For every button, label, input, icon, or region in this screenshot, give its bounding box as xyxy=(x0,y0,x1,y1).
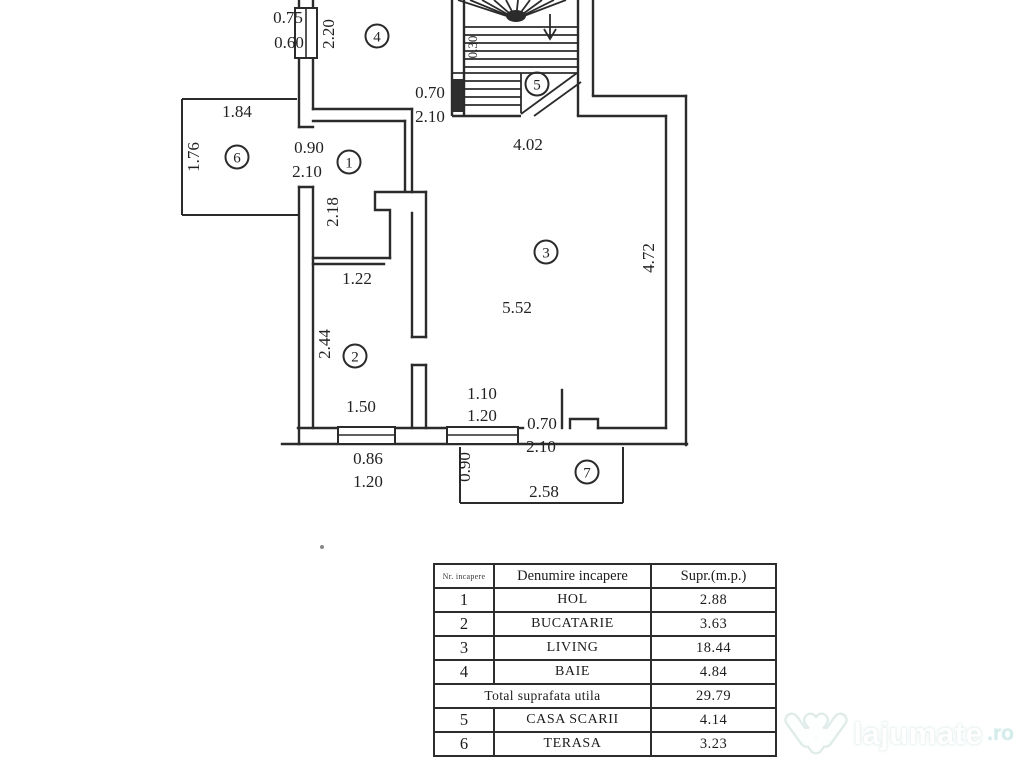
room-nr-cell: 2 xyxy=(434,612,494,636)
total-area-cell: 29.79 xyxy=(651,684,776,708)
room-area-cell: 18.44 xyxy=(651,636,776,660)
dimension-label: 0.70 xyxy=(527,414,557,433)
dimension-label: 0.60 xyxy=(274,33,304,52)
dimension-label: 1.20 xyxy=(353,472,383,491)
room-number: 3 xyxy=(542,246,550,262)
room-area-cell: 2.88 xyxy=(651,588,776,612)
room-nr-cell: 3 xyxy=(434,636,494,660)
header-name: Denumire incapere xyxy=(494,564,651,588)
room-number: 6 xyxy=(233,151,241,167)
dimension-label: 2.10 xyxy=(415,107,445,126)
room-number: 5 xyxy=(533,78,541,94)
room-nr-cell: 5 xyxy=(434,708,494,732)
room-name-cell: LIVING xyxy=(494,636,651,660)
room-name-cell: CASA SCARII xyxy=(494,708,651,732)
scanned-floorplan-page: { "plan": { "line_color": "#2b2b2b", "la… xyxy=(0,0,1024,768)
table-row: 4BAIE4.84 xyxy=(434,660,776,684)
dimension-label: 1.10 xyxy=(467,384,497,403)
room-name-cell: BUCATARIE xyxy=(494,612,651,636)
room-area-cell: 3.23 xyxy=(651,732,776,756)
table-row: 3LIVING18.44 xyxy=(434,636,776,660)
dimension-label: 2.10 xyxy=(526,437,556,456)
dimension-label: 2.20 xyxy=(319,19,338,49)
room-area-cell: 4.14 xyxy=(651,708,776,732)
room-nr-cell: 1 xyxy=(434,588,494,612)
dimension-label: 1.76 xyxy=(184,142,203,172)
room-number: 7 xyxy=(583,466,591,482)
dimension-label: 0.30 xyxy=(465,36,480,59)
dimension-label: 1.22 xyxy=(342,269,372,288)
room-area-cell: 3.63 xyxy=(651,612,776,636)
table-row: 5CASA SCARII4.14 xyxy=(434,708,776,732)
dimension-label: 1.50 xyxy=(346,397,376,416)
dimension-label: 1.84 xyxy=(222,102,252,121)
room-number: 1 xyxy=(345,156,353,172)
room-number: 2 xyxy=(351,350,359,366)
area-table: Nr. incapere Denumire incapere Supr.(m.p… xyxy=(433,563,777,757)
room-nr-cell: 6 xyxy=(434,732,494,756)
dimension-label: 4.02 xyxy=(513,135,543,154)
header-nr: Nr. incapere xyxy=(434,564,494,588)
room-name-cell: TERASA xyxy=(494,732,651,756)
scan-speck xyxy=(320,545,324,549)
table-row: Total suprafata utila29.79 xyxy=(434,684,776,708)
room-name-cell: BAIE xyxy=(494,660,651,684)
floorplan-scan: 0.750.602.200.702.100.304.021.841.760.90… xyxy=(0,0,1024,768)
room-area-cell: 4.84 xyxy=(651,660,776,684)
total-label-cell: Total suprafata utila xyxy=(434,684,651,708)
dimension-label: 0.75 xyxy=(273,8,303,27)
header-area: Supr.(m.p.) xyxy=(651,564,776,588)
dimension-label: 2.44 xyxy=(315,329,334,359)
floor-plan-drawing: 0.750.602.200.702.100.304.021.841.760.90… xyxy=(0,0,1024,560)
table-row: 2BUCATARIE3.63 xyxy=(434,612,776,636)
room-number: 4 xyxy=(373,30,381,46)
table-row: 1HOL2.88 xyxy=(434,588,776,612)
dimension-label: 5.52 xyxy=(502,298,532,317)
dimension-label: 0.70 xyxy=(415,83,445,102)
dimension-label: 2.10 xyxy=(292,162,322,181)
dimension-label: 0.90 xyxy=(294,138,324,157)
table-header-row: Nr. incapere Denumire incapere Supr.(m.p… xyxy=(434,564,776,588)
dimension-label: 2.18 xyxy=(323,197,342,227)
dimension-label: 4.72 xyxy=(639,243,658,273)
dimension-label: 0.90 xyxy=(455,452,474,482)
table-row: 6TERASA3.23 xyxy=(434,732,776,756)
room-name-cell: HOL xyxy=(494,588,651,612)
dimension-label: 1.20 xyxy=(467,406,497,425)
room-nr-cell: 4 xyxy=(434,660,494,684)
dimension-label: 0.86 xyxy=(353,449,383,468)
dimension-label: 2.58 xyxy=(529,482,559,501)
